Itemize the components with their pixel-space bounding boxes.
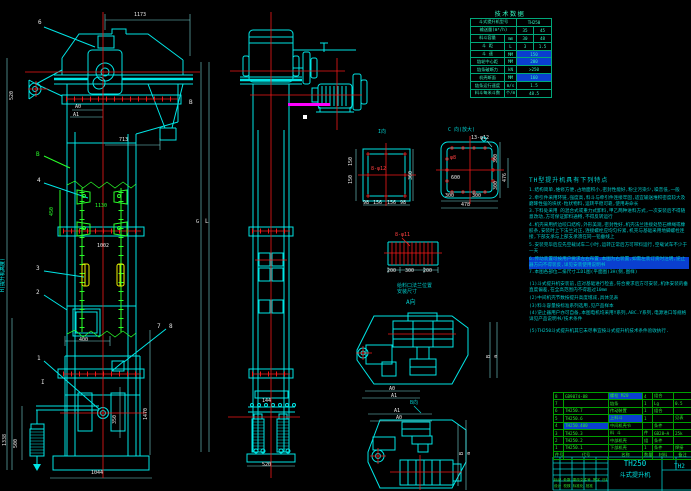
dimension-label: 13-φ12 — [471, 136, 489, 141]
dimension-label: 8 — [169, 324, 173, 330]
parts-table-cell: 料 斗 — [609, 429, 643, 436]
parts-table-cell: TH250.3 — [564, 429, 609, 436]
dimension-label: 476 — [503, 173, 508, 182]
parts-table-cell — [674, 437, 691, 444]
title-block-model: TH250 — [608, 459, 662, 468]
parts-table-header-cell: 备注 — [674, 452, 691, 459]
parts-table-cell: 7 — [554, 400, 564, 407]
parts-table-cell — [564, 400, 609, 407]
parts-table-cell — [653, 415, 674, 422]
dimension-label: 144 — [262, 399, 271, 404]
parts-table-cell: 链条 — [609, 400, 643, 407]
parts-table-cell: 条件 — [653, 437, 674, 444]
dimension-label: B — [189, 100, 193, 106]
note-item: 3.下料处采用 的混合式或重力式卸料,甲乙两种进料方式,一次安装后不得随意改动,… — [529, 209, 689, 221]
dimension-label: 600 — [451, 176, 460, 181]
note-item: 1.结构简单,维修方便,占地面积小,密封性能好,粉尘污染少,噪音低,一般 — [529, 188, 689, 194]
dimension-label: 360 — [409, 171, 414, 180]
parts-table-cell: Lg — [653, 400, 674, 407]
tech-table-cell: 35 — [517, 26, 534, 34]
dimension-label: 200 — [423, 269, 432, 274]
dimension-label: 156 — [387, 201, 396, 206]
dimension-label: 520 — [10, 91, 15, 100]
dimension-label: 98 — [400, 201, 406, 206]
dimension-label: 520 — [262, 463, 271, 468]
dimension-label: I — [41, 380, 45, 386]
parts-table-cell: 传动装置 — [609, 407, 643, 414]
dimension-label: B — [460, 452, 465, 455]
note-item: (5)TH250斗式提升机其它未尽事宜按斗式提升机技术条件验收执行. — [529, 329, 689, 335]
dimension-label: 156 — [373, 201, 382, 206]
dimension-label: I向 — [378, 130, 386, 135]
dimension-label: 300 — [405, 269, 414, 274]
selection-grip — [303, 115, 307, 119]
dimension-label: 478 — [461, 203, 470, 208]
dimension-label: A1 — [73, 113, 79, 118]
tech-table-cell: 1.5 — [534, 42, 552, 50]
dimension-label: 3 — [36, 266, 40, 272]
parts-table-cell: 1 — [643, 444, 653, 451]
parts-table-cell: TH250.1 — [564, 444, 609, 451]
parts-table-cell: 上料斗 — [609, 415, 643, 422]
notes-block: TH型提升机具有下列特点1.结构简单,维修方便,占地面积小,密封性能好,粉尘污染… — [529, 177, 689, 337]
tech-table-cell: 链条运行速度 — [471, 82, 505, 90]
dimension-label: G — [196, 220, 199, 225]
dimension-label: A0 — [75, 105, 81, 110]
tech-table-cell: MM — [505, 58, 517, 66]
dimension-label: 150 — [349, 175, 354, 184]
tech-table-cell: 48.5 — [517, 90, 552, 98]
note-item: 7.本图各部位二排尺寸工D1图(平面图)3H(侧,图样) — [529, 270, 689, 276]
parts-table-cell: 组 — [643, 437, 653, 444]
parts-table-cell: 1 — [554, 444, 564, 451]
tech-data-table: 斗式提升机型号TH250输送量(m³/h)3545料斗容量mm3048斗 距L3… — [470, 18, 552, 98]
note-item: 5.安装完毕后应先空载试车二小时,运转正常后方可带料运行,空载试车不少于一天 — [529, 243, 689, 255]
dimension-label: 1173 — [134, 13, 146, 18]
dimension-label: C 向(放大) — [448, 128, 475, 133]
parts-table-cell: 1 — [643, 407, 653, 414]
parts-table-cell: 25k — [674, 429, 691, 436]
tech-table-cell: 链条破断力 — [471, 66, 505, 74]
dimension-label: B向 — [410, 401, 418, 406]
dimension-label: 8-φ12 — [371, 167, 386, 172]
dimension-label: 300 — [494, 181, 499, 190]
tech-table-cell: 输送量(m³/h) — [471, 26, 517, 34]
parts-table-cell: 3 — [554, 429, 564, 436]
note-item: 2.牵引件采用环链,强度高,料斗与牵引件连接牢固,适宜输送堆积密度较大及磨琢性强… — [529, 196, 689, 208]
parts-table-cell: 件 — [643, 429, 653, 436]
dimension-label: 8-φ11 — [395, 233, 410, 238]
parts-table-cell: 4 — [554, 422, 564, 429]
dimension-label: 1338 — [3, 434, 8, 446]
tech-table-cell: m/s — [505, 82, 517, 90]
tech-table-cell: 45 — [534, 26, 552, 34]
dimension-label: 2 — [36, 290, 40, 296]
dimension-label: 200 — [387, 269, 396, 274]
note-item: (2)中间机壳节数按提升高度增减,具体见表 — [529, 296, 689, 302]
title-block-approval-row: 设计 校核 标准化 批准 — [554, 484, 607, 489]
parts-table-cell: 见表 — [674, 415, 691, 422]
parts-table-cell: 组合 — [653, 393, 674, 400]
tech-table-cell: 30 — [517, 34, 534, 42]
dimension-label: 1044 — [91, 471, 103, 476]
tech-table-cell: 160 — [517, 74, 552, 82]
dimension-label: φ8 — [450, 156, 456, 161]
title-block-revision-row: 标记 处数 更改文件号 签字 日期 — [554, 478, 607, 483]
dimension-label: 6 — [38, 20, 42, 26]
parts-table-cell: 6 — [554, 407, 564, 414]
note-item: (4)逆止器用户亦可自备,本图电机均采用Y系列,ABC.Y系列,电源进口等规格详… — [529, 311, 689, 323]
dimension-label: 7 — [157, 324, 161, 330]
tech-table-cell: 斗 距 — [471, 42, 505, 50]
note-item: (1)斗式提升机安装前,应对基础进行检查,符合要求后方可安装,机体安装的垂直度偏… — [529, 282, 689, 294]
parts-table-cell: GB28—A — [653, 429, 674, 436]
parts-list-table: 8GB9074-88螺栓 M204组合7链条1Lg0.56TH250.7传动装置… — [553, 392, 691, 460]
parts-table-cell: TH250.400 — [564, 422, 609, 429]
plan-views — [356, 313, 497, 490]
tech-table-cell: 料斗容量 — [471, 34, 505, 42]
tech-table-cell: 150 — [517, 50, 552, 58]
parts-table-cell: 1 — [643, 400, 653, 407]
dimension-label: 1470 — [144, 408, 149, 420]
dimension-label: a — [467, 452, 472, 455]
parts-table-cell: 螺栓 M20 — [609, 393, 643, 400]
tech-table-cell: 料斗每米斗数 — [471, 90, 505, 98]
parts-table-cell: 2 — [554, 437, 564, 444]
note-item: (3)料斗容量按标准系列选用,见产品样本 — [529, 304, 689, 310]
parts-table-cell: 0.5 — [674, 400, 691, 407]
tech-table-cell: >250 — [517, 66, 552, 74]
dimension-label: 4 — [37, 178, 41, 184]
tech-table-cell: 3 — [517, 42, 534, 50]
tech-table-cell: MM — [505, 74, 517, 82]
note-item: 6.传动装置可按用户要求左右布置,本图为右装置,如需左装订货时注明,逆止器方向不… — [529, 257, 689, 269]
parts-table-cell: 组合 — [653, 407, 674, 414]
tech-table-cell: TH250 — [517, 19, 552, 27]
dimension-label: 500 — [14, 439, 19, 448]
dimension-label: 713 — [119, 138, 128, 143]
notes-header: TH型提升机具有下列特点 — [529, 177, 689, 185]
belt-highlight-line — [288, 103, 330, 106]
parts-table-header-cell: 数量 — [643, 452, 653, 459]
parts-table-cell — [674, 422, 691, 429]
dimension-label: A1 — [394, 409, 400, 414]
parts-table-cell: 5 — [554, 415, 564, 422]
parts-table-cell: GB9074-88 — [564, 393, 609, 400]
tech-table-cell: 48 — [534, 34, 552, 42]
parts-table-header-cell: 件号 — [554, 452, 564, 459]
dimension-label: B — [36, 152, 40, 158]
parts-table-cell: TH250.7 — [564, 407, 609, 414]
side-view — [228, 12, 367, 478]
dimension-label: 1002 — [97, 244, 109, 249]
tech-table-cell: 200 — [517, 58, 552, 66]
parts-table-cell: 中间机壳节 — [609, 422, 643, 429]
parts-table-cell: TH250.6 — [564, 415, 609, 422]
tech-table-cell: 斗式提升机型号 — [471, 19, 517, 27]
parts-table-cell: 下部机壳 — [609, 444, 643, 451]
tech-table-cell: 斗 速 — [471, 50, 505, 58]
parts-table-cell: 焊接 — [674, 444, 691, 451]
tech-table-cell: 机壳断面 — [471, 74, 505, 82]
dimension-label: A1 — [391, 394, 397, 399]
dimension-label: 400 — [79, 338, 88, 343]
tech-table-cell: MM — [505, 50, 517, 58]
dimension-label: A向 — [406, 300, 416, 306]
dimension-label: a — [494, 355, 499, 358]
parts-table-cell — [674, 407, 691, 414]
tech-table-cell: 个/m — [505, 90, 517, 98]
dimension-label: 300 — [494, 154, 499, 163]
dimension-label: 450 — [50, 207, 55, 216]
tech-table-cell: L — [505, 42, 517, 50]
dimension-label: 安装尺寸 — [397, 290, 417, 295]
parts-table-cell: 中部机壳 — [609, 437, 643, 444]
title-block-product-name: 斗式提升机 — [608, 470, 662, 479]
dimension-label: 98 — [363, 201, 369, 206]
dimension-label: 350 — [113, 415, 118, 424]
dimension-label: 150 — [349, 157, 354, 166]
dimension-label: 1130 — [95, 204, 107, 209]
parts-table-cell: 1 — [643, 415, 653, 422]
dimension-label: A0 — [396, 416, 402, 421]
dimension-label: 300 — [472, 194, 481, 199]
parts-table-cell: 8 — [554, 393, 564, 400]
parts-table-cell — [643, 422, 653, 429]
tech-table-title: 技术数据 — [468, 9, 552, 18]
parts-table-cell — [674, 393, 691, 400]
dimension-label: 1 — [37, 356, 41, 362]
tech-table-cell: mm — [505, 34, 517, 42]
tech-table-cell: 链轮中心距 — [471, 58, 505, 66]
tech-table-cell: 1.5 — [517, 82, 552, 90]
parts-table-cell: 条件 — [653, 444, 674, 451]
tech-table-cell: kN — [505, 66, 517, 74]
title-block-doc-number: TH2 — [674, 463, 685, 470]
cad-drawing-canvas[interactable]: 技术数据 斗式提升机型号TH250输送量(m³/h)3545料斗容量mm3048… — [0, 0, 691, 491]
dimension-label: A0 — [389, 387, 395, 392]
parts-table-header-cell: 代号 — [564, 452, 609, 459]
parts-table-cell: 条件 — [653, 422, 674, 429]
dimension-label: B — [487, 355, 492, 358]
parts-table-header-cell: 名称 — [609, 452, 643, 459]
parts-table-cell: 4 — [643, 393, 653, 400]
dimension-label: H(提升机高度) — [1, 258, 6, 292]
dimension-label: L — [205, 219, 209, 225]
note-item: 4.机壳采用折边咬口结构,外形美观,密封性好,机壳法兰连接处垫石棉绳或橡胶条,安… — [529, 223, 689, 241]
parts-table-header-cell: 材料 — [653, 452, 674, 459]
dimension-label: 300 — [445, 194, 454, 199]
parts-table-cell: TH250.2 — [564, 437, 609, 444]
